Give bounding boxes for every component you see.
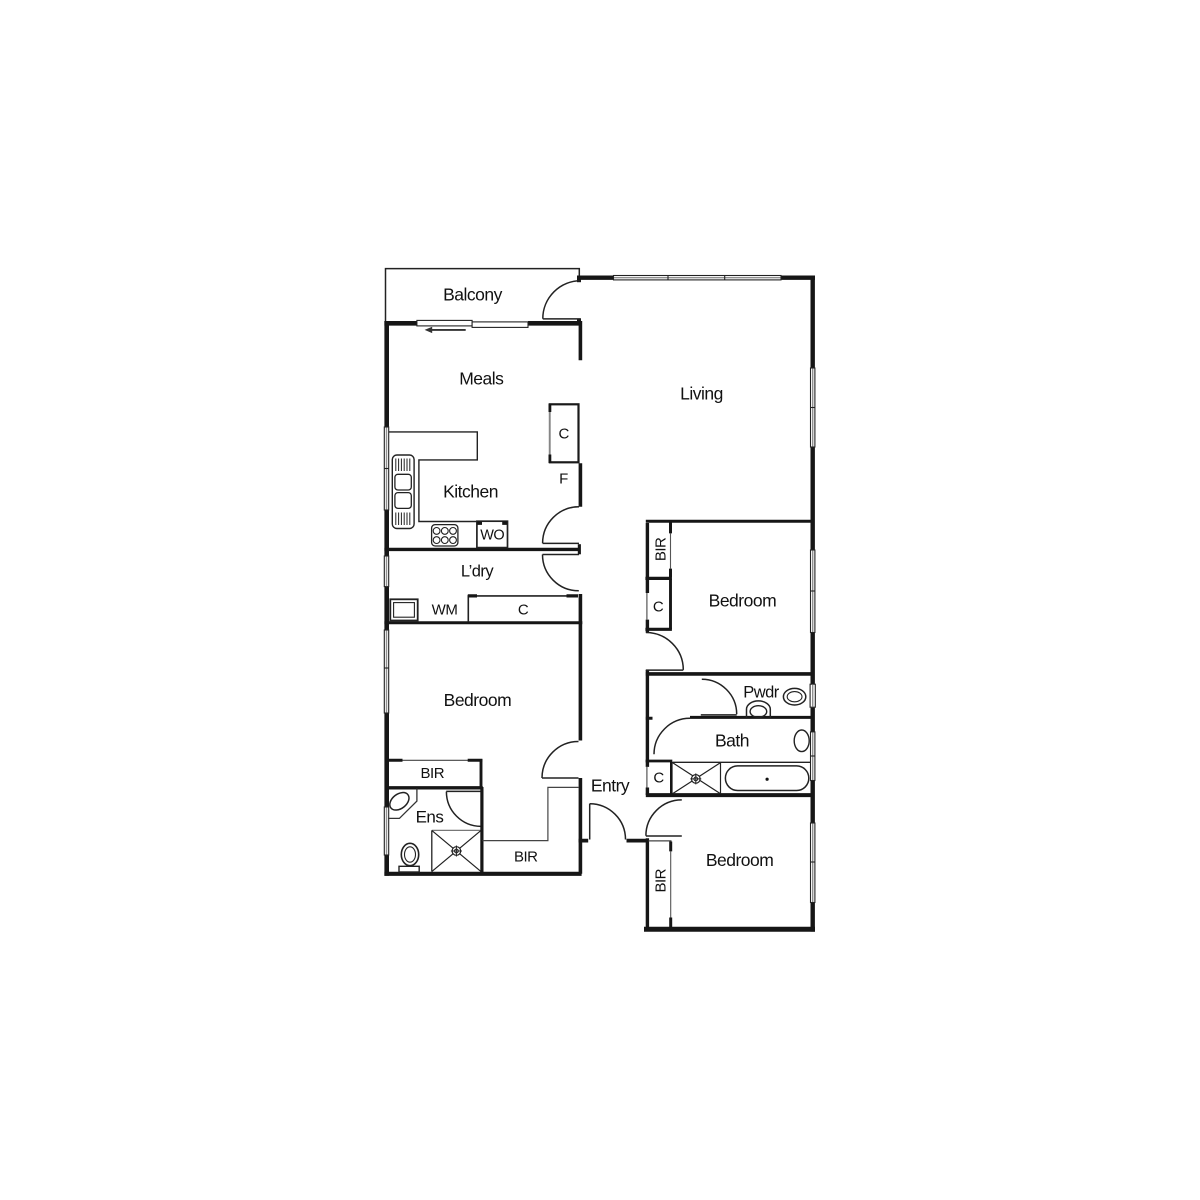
svg-text:WM: WM — [432, 601, 458, 618]
svg-text:F: F — [559, 470, 568, 487]
svg-text:WO: WO — [480, 527, 504, 543]
svg-text:BIR: BIR — [421, 765, 445, 782]
svg-text:Entry: Entry — [591, 775, 630, 795]
svg-text:C: C — [653, 770, 664, 787]
svg-text:C: C — [559, 425, 570, 442]
svg-text:Bedroom: Bedroom — [706, 850, 774, 870]
svg-text:C: C — [518, 602, 529, 619]
svg-text:BIR: BIR — [652, 537, 669, 561]
svg-text:L’dry: L’dry — [461, 563, 495, 581]
svg-text:Bath: Bath — [715, 731, 749, 751]
svg-text:Meals: Meals — [459, 368, 504, 388]
svg-text:Ens: Ens — [416, 807, 444, 826]
svg-text:Bedroom: Bedroom — [709, 590, 777, 610]
svg-text:Bedroom: Bedroom — [444, 690, 512, 710]
svg-text:Living: Living — [680, 384, 723, 404]
svg-text:BIR: BIR — [514, 849, 538, 866]
svg-text:BIR: BIR — [652, 868, 669, 892]
svg-text:Kitchen: Kitchen — [443, 482, 498, 502]
svg-text:C: C — [653, 598, 664, 615]
svg-text:Balcony: Balcony — [443, 285, 503, 305]
svg-text:Pwdr: Pwdr — [743, 683, 780, 701]
